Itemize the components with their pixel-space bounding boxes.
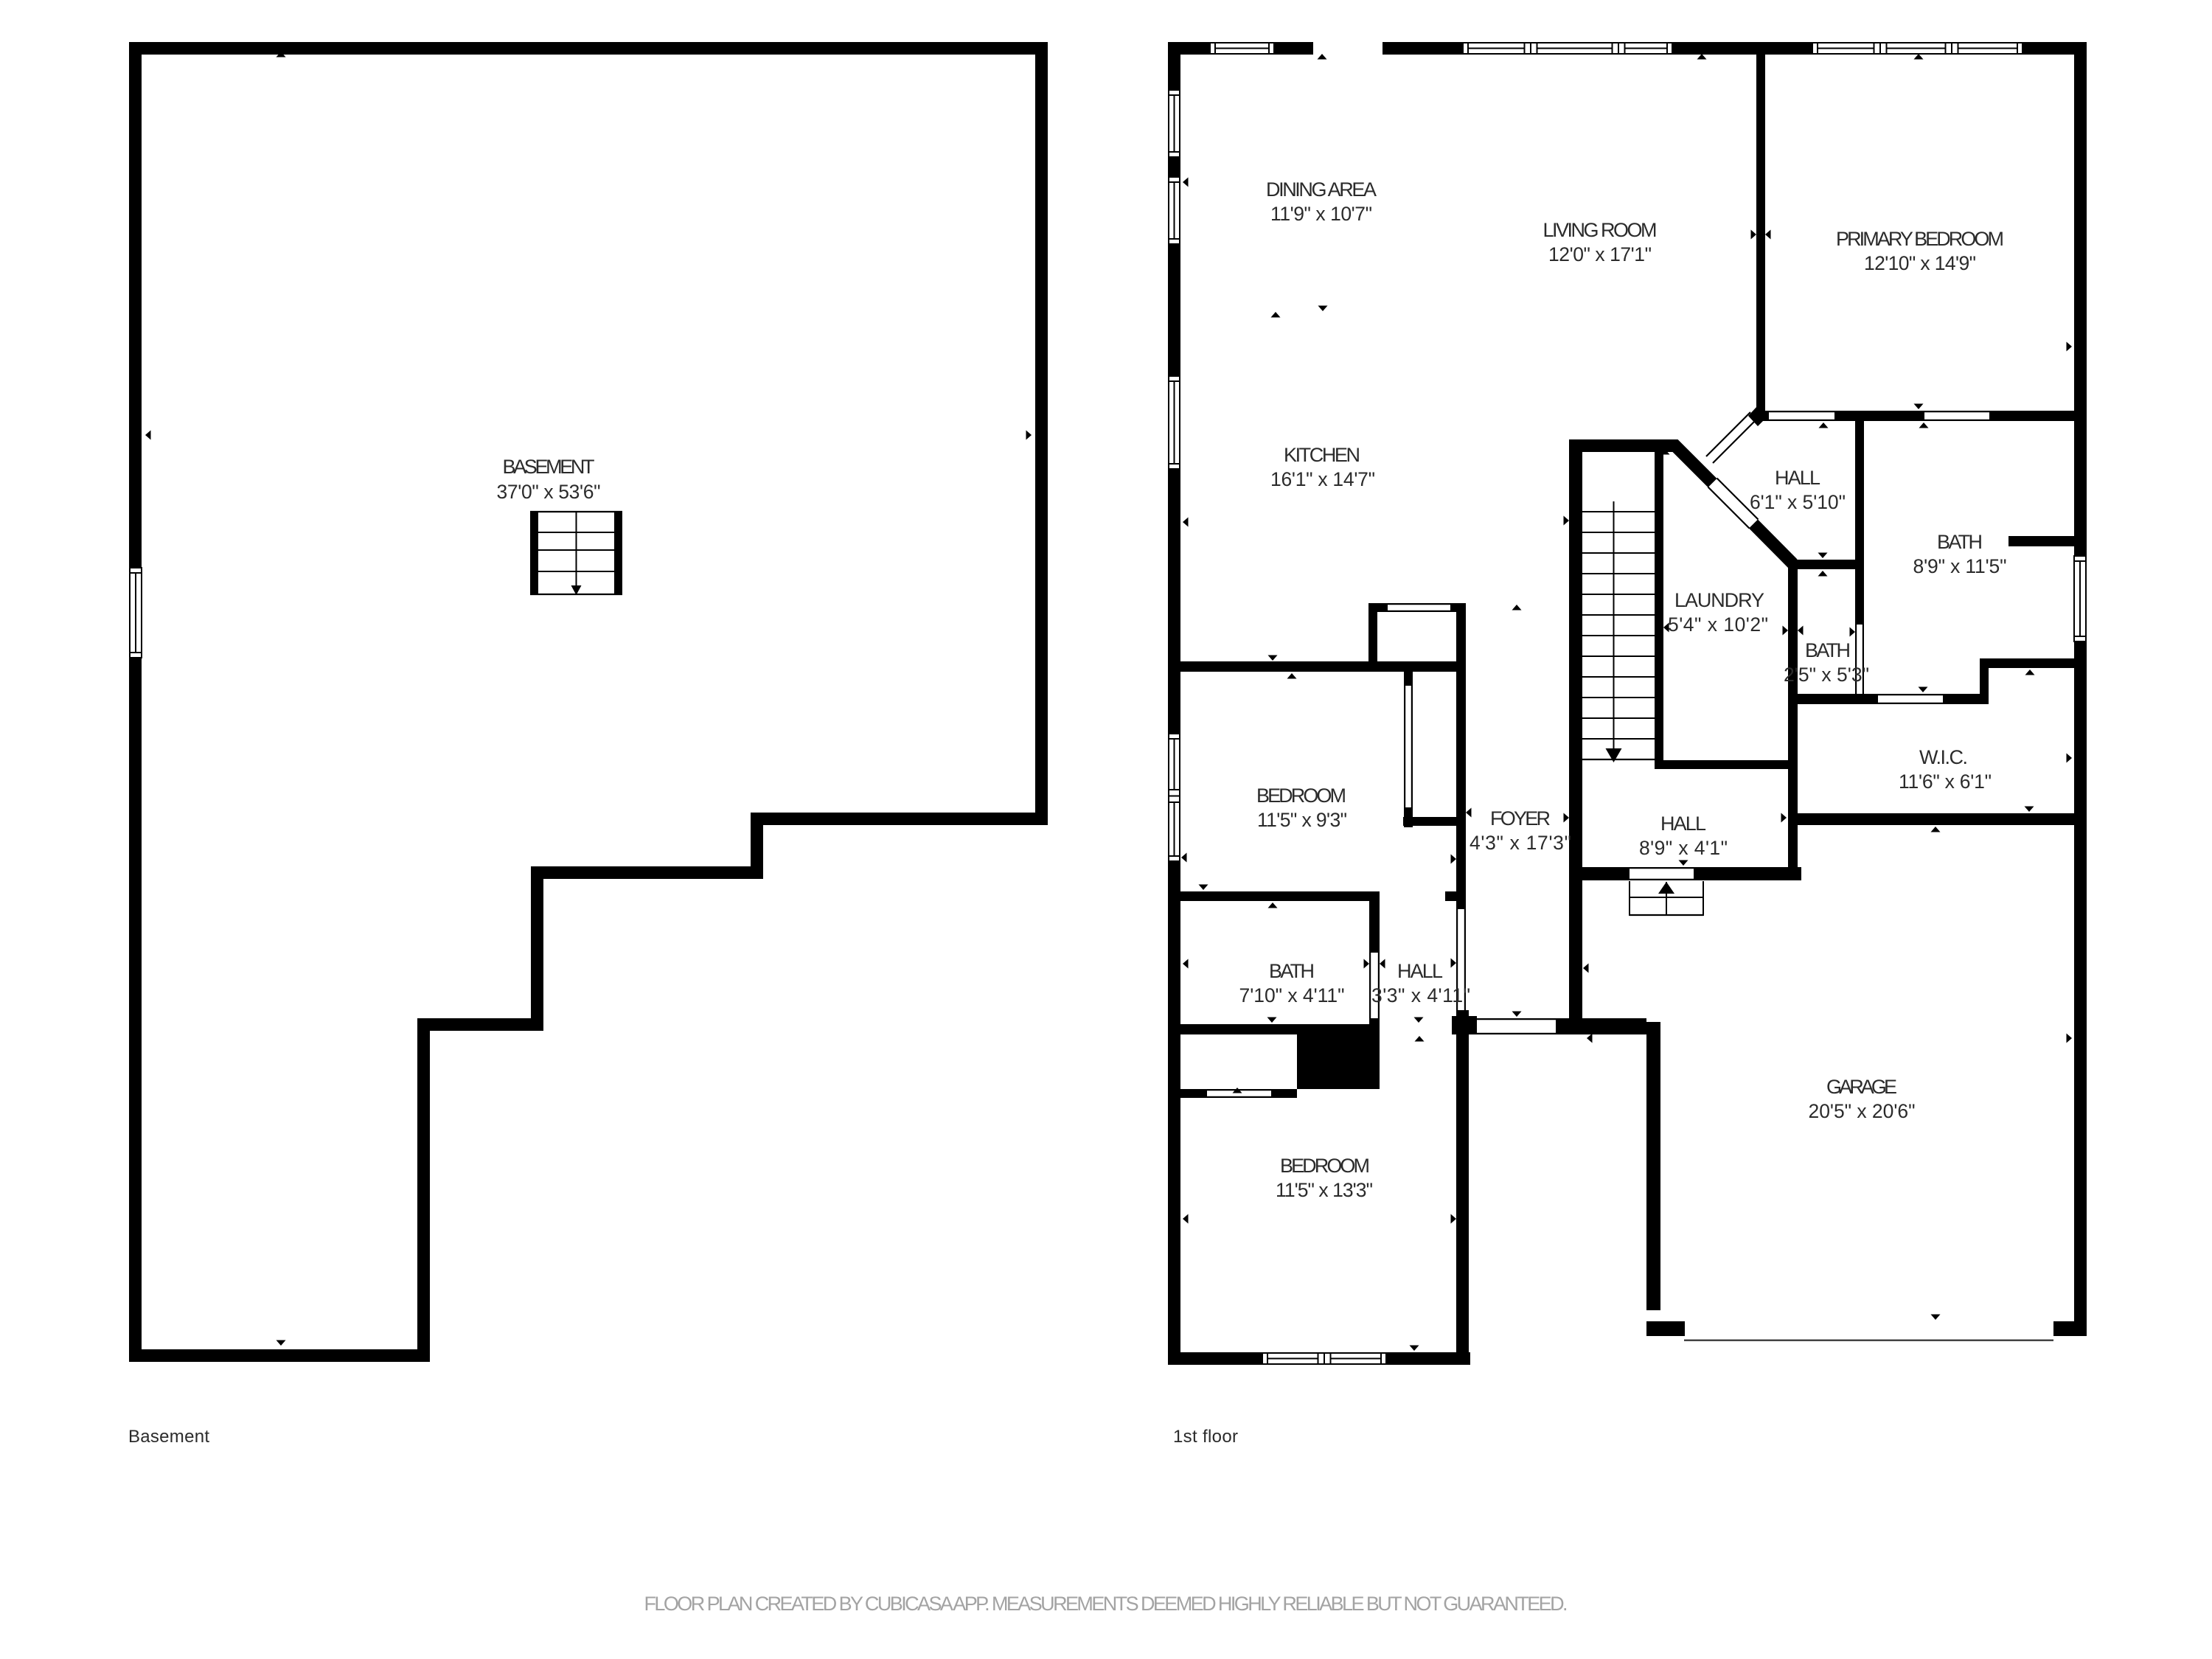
svg-text:FLOOR PLAN CREATED BY CUBICASA: FLOOR PLAN CREATED BY CUBICASA APP. MEAS…	[644, 1593, 1568, 1615]
svg-text:2'5" x 5'3": 2'5" x 5'3"	[1784, 664, 1869, 686]
svg-text:1st floor: 1st floor	[1173, 1427, 1238, 1447]
svg-text:12'0" x 17'1": 12'0" x 17'1"	[1548, 243, 1652, 265]
svg-text:W.I.C.: W.I.C.	[1919, 746, 1968, 768]
svg-text:7'10" x 4'11": 7'10" x 4'11"	[1239, 984, 1345, 1006]
svg-text:37'0" x 53'6": 37'0" x 53'6"	[497, 481, 601, 503]
svg-text:11'6" x 6'1": 11'6" x 6'1"	[1899, 771, 1992, 793]
svg-text:LIVING ROOM: LIVING ROOM	[1543, 219, 1658, 241]
svg-text:BATH: BATH	[1937, 531, 1983, 553]
svg-text:HALL: HALL	[1660, 813, 1706, 835]
svg-text:BASEMENT: BASEMENT	[503, 456, 595, 478]
svg-text:BATH: BATH	[1269, 960, 1315, 982]
svg-text:4'3" x 17'3": 4'3" x 17'3"	[1470, 832, 1571, 854]
svg-text:8'9" x 4'1": 8'9" x 4'1"	[1639, 837, 1728, 859]
svg-text:BATH: BATH	[1805, 639, 1851, 661]
svg-text:GARAGE: GARAGE	[1826, 1076, 1897, 1098]
svg-text:20'5" x 20'6": 20'5" x 20'6"	[1809, 1100, 1916, 1122]
svg-text:12'10" x 14'9": 12'10" x 14'9"	[1864, 252, 1976, 274]
svg-text:FOYER: FOYER	[1490, 807, 1551, 829]
svg-text:Basement: Basement	[128, 1427, 209, 1447]
svg-text:BEDROOM: BEDROOM	[1256, 785, 1346, 807]
svg-text:11'5" x 13'3": 11'5" x 13'3"	[1276, 1179, 1373, 1201]
svg-text:3'3" x 4'11": 3'3" x 4'11"	[1371, 984, 1470, 1006]
svg-text:LAUNDRY: LAUNDRY	[1674, 589, 1764, 611]
svg-text:11'9" x 10'7": 11'9" x 10'7"	[1270, 203, 1372, 225]
svg-text:PRIMARY BEDROOM: PRIMARY BEDROOM	[1836, 228, 2004, 250]
svg-text:KITCHEN: KITCHEN	[1284, 444, 1360, 466]
svg-text:11'5" x 9'3": 11'5" x 9'3"	[1257, 809, 1347, 831]
svg-text:HALL: HALL	[1775, 467, 1820, 489]
svg-text:5'4" x 10'2": 5'4" x 10'2"	[1668, 613, 1768, 636]
svg-text:16'1" x 14'7": 16'1" x 14'7"	[1270, 468, 1375, 490]
svg-text:BEDROOM: BEDROOM	[1280, 1155, 1370, 1177]
svg-text:DINING AREA: DINING AREA	[1266, 178, 1377, 201]
svg-text:HALL: HALL	[1397, 960, 1443, 982]
svg-text:6'1" x 5'10": 6'1" x 5'10"	[1750, 491, 1846, 513]
svg-text:8'9" x 11'5": 8'9" x 11'5"	[1913, 555, 2007, 577]
